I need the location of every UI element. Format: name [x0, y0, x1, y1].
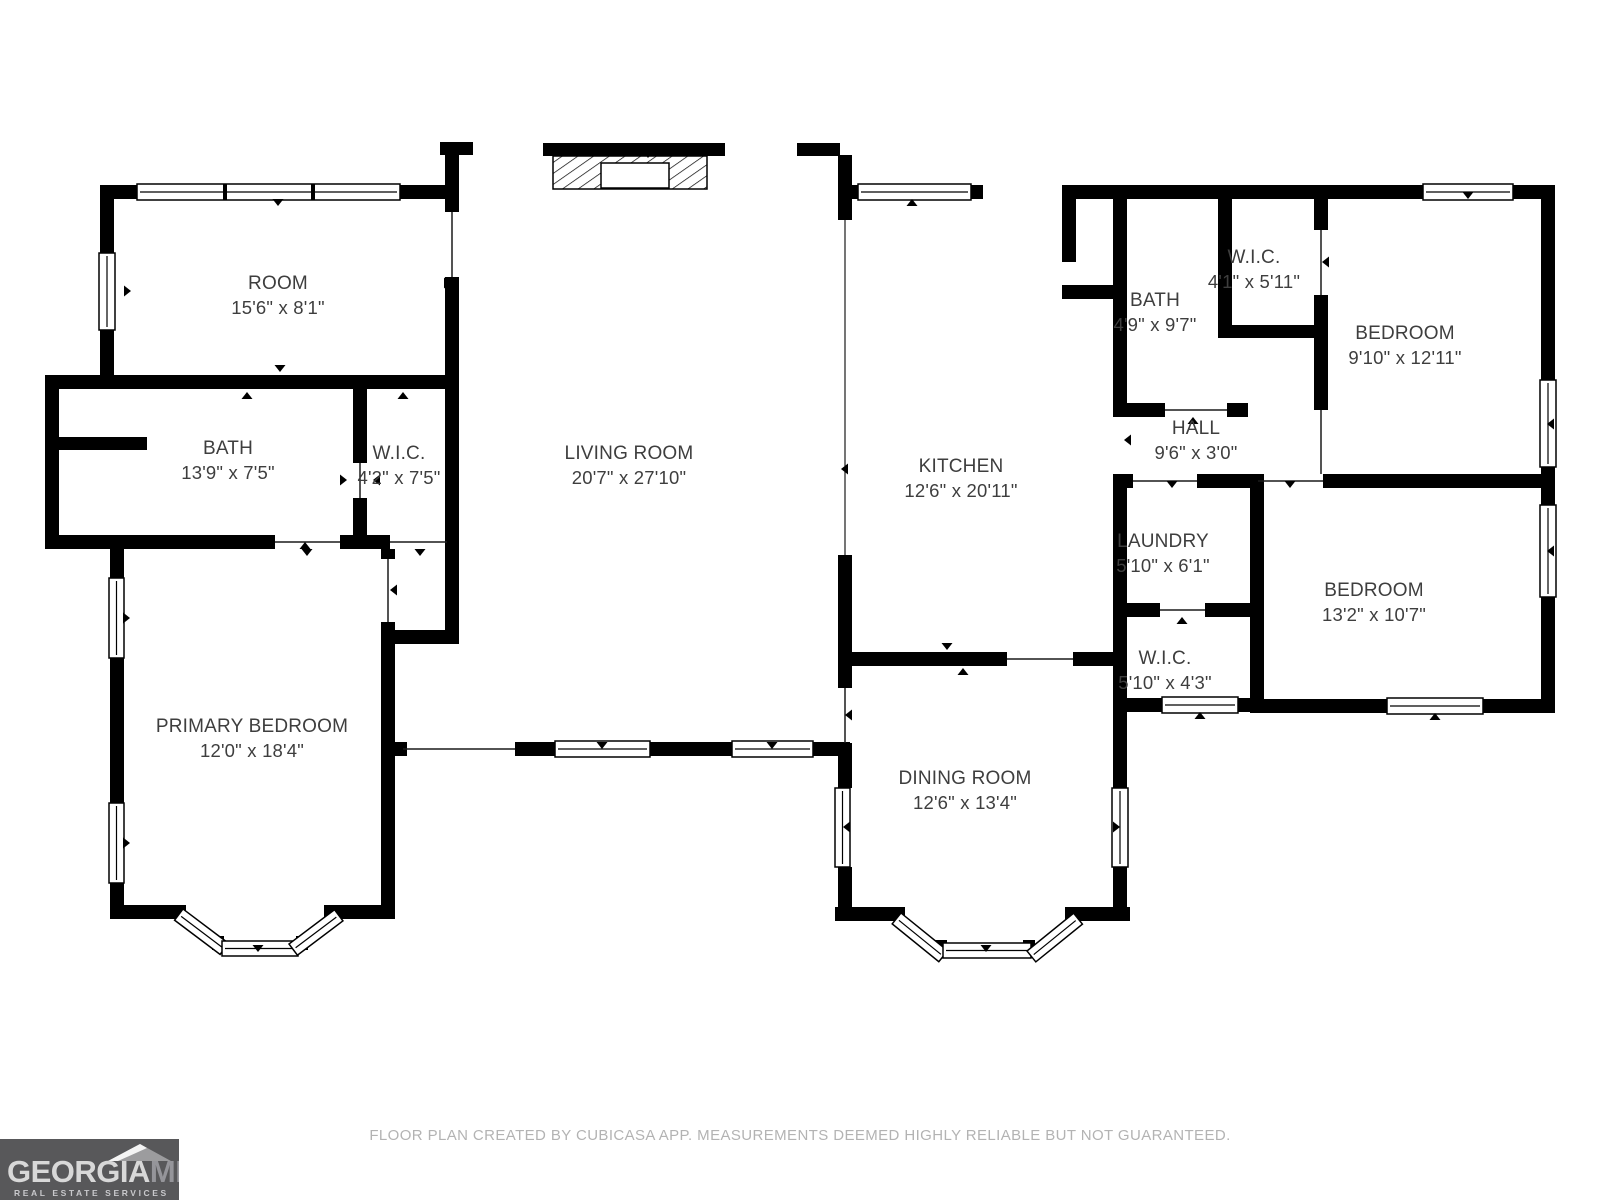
room-label-hall: HALL9'6" x 3'0": [1154, 417, 1237, 465]
georgia-mls-logo: GEORGIAMLS REAL ESTATE SERVICES: [0, 1139, 179, 1200]
room-dims: 12'6" x 20'11": [904, 479, 1017, 503]
floor-plan-page: { "floor_plan": { "rooms": [ {"id": "roo…: [0, 0, 1600, 1200]
room-dims: 9'10" x 12'11": [1348, 346, 1461, 370]
room-name: HALL: [1154, 417, 1237, 441]
room-name: W.I.C.: [1208, 246, 1300, 270]
window-kitchen-top: [858, 184, 971, 200]
room-name: LAUNDRY: [1116, 530, 1210, 554]
fireplace: [553, 156, 707, 189]
logo-brand-suffix-text: MLS: [150, 1154, 179, 1189]
room-label-wic-1: W.I.C.4'2" x 7'5": [357, 442, 440, 490]
room-name: BATH: [1113, 289, 1196, 313]
window-room-top: [137, 184, 400, 200]
room-label-bath-2: BATH4'9" x 9'7": [1113, 289, 1196, 337]
room-dims: 13'9" x 7'5": [181, 461, 275, 485]
room-dims: 12'6" x 13'4": [898, 791, 1031, 815]
room-dims: 5'10" x 4'3": [1118, 671, 1212, 695]
room-label-bath-1: BATH13'9" x 7'5": [181, 437, 275, 485]
room-label-laundry: LAUNDRY5'10" x 6'1": [1116, 530, 1210, 578]
room-label-dining-room: DINING ROOM12'6" x 13'4": [898, 767, 1031, 815]
room-label-room: ROOM15'6" x 8'1": [231, 272, 325, 320]
room-label-primary-bedroom: PRIMARY BEDROOM12'0" x 18'4": [156, 715, 348, 763]
room-label-bedroom-2: BEDROOM13'2" x 10'7": [1322, 579, 1426, 627]
room-label-living-room: LIVING ROOM20'7" x 27'10": [565, 442, 694, 490]
room-name: ROOM: [231, 272, 325, 296]
room-dims: 4'1" x 5'11": [1208, 270, 1300, 294]
room-dims: 9'6" x 3'0": [1154, 441, 1237, 465]
room-label-wic-2: W.I.C.4'1" x 5'11": [1208, 246, 1300, 294]
room-dims: 15'6" x 8'1": [231, 296, 325, 320]
room-dims: 4'2" x 7'5": [357, 466, 440, 490]
logo-brand-text: GEORGIA: [7, 1154, 150, 1189]
room-dims: 4'9" x 9'7": [1113, 313, 1196, 337]
room-dims: 5'10" x 6'1": [1116, 554, 1210, 578]
logo-tagline: REAL ESTATE SERVICES: [14, 1188, 169, 1198]
room-name: KITCHEN: [904, 455, 1017, 479]
bay-window-dining: [892, 913, 1082, 962]
room-dims: 20'7" x 27'10": [565, 466, 694, 490]
room-name: LIVING ROOM: [565, 442, 694, 466]
logo-brand-row: GEORGIAMLS: [7, 1156, 179, 1187]
room-name: W.I.C.: [1118, 647, 1212, 671]
room-dims: 13'2" x 10'7": [1322, 603, 1426, 627]
room-name: W.I.C.: [357, 442, 440, 466]
room-name: PRIMARY BEDROOM: [156, 715, 348, 739]
room-name: BEDROOM: [1348, 322, 1461, 346]
room-label-kitchen: KITCHEN12'6" x 20'11": [904, 455, 1017, 503]
window-room-left: [99, 253, 115, 330]
room-dims: 12'0" x 18'4": [156, 739, 348, 763]
window-primary-left-upper: [109, 578, 124, 658]
window-primary-left-lower: [109, 803, 124, 883]
window-bedroom2-bottom: [1387, 698, 1483, 714]
room-label-wic-3: W.I.C.5'10" x 4'3": [1118, 647, 1212, 695]
window-wic3-bottom: [1162, 697, 1238, 713]
room-name: DINING ROOM: [898, 767, 1031, 791]
room-label-bedroom-1: BEDROOM9'10" x 12'11": [1348, 322, 1461, 370]
disclaimer-text: FLOOR PLAN CREATED BY CUBICASA APP. MEAS…: [0, 1127, 1600, 1144]
room-name: BATH: [181, 437, 275, 461]
room-name: BEDROOM: [1322, 579, 1426, 603]
